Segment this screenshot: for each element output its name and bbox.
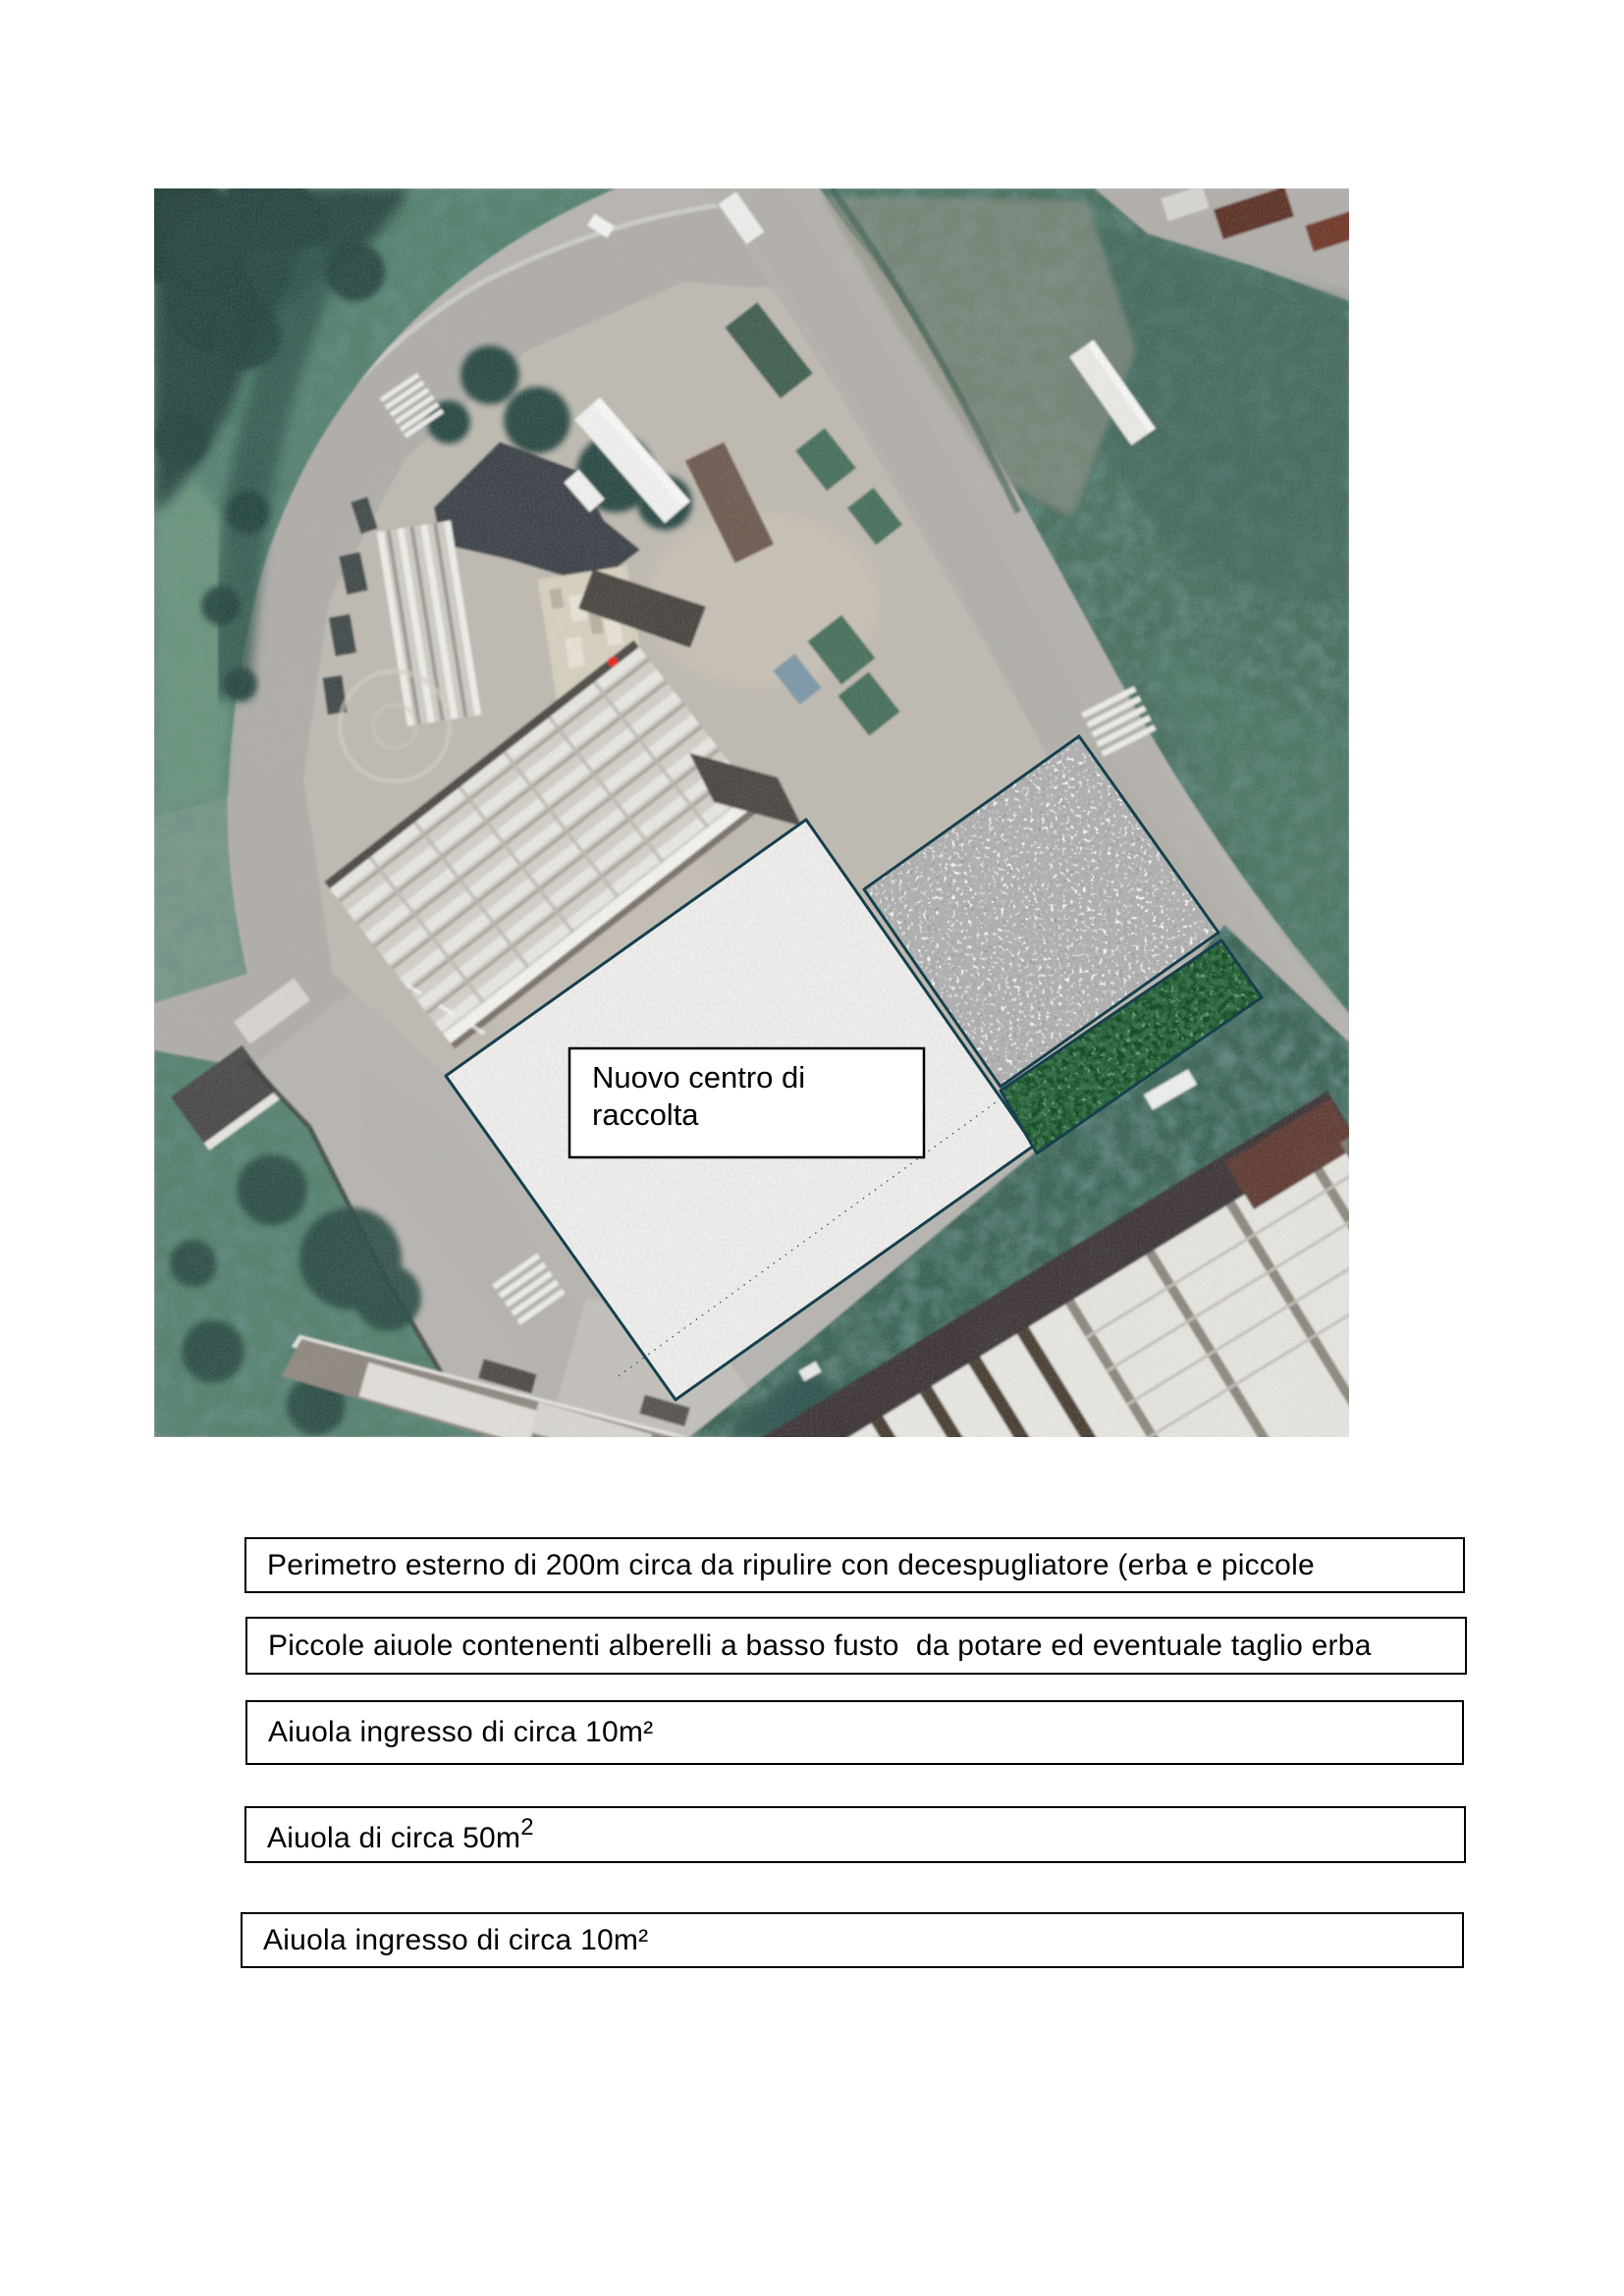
svg-text:raccolta: raccolta [592, 1097, 699, 1132]
svg-text:Nuovo centro di: Nuovo centro di [592, 1060, 805, 1095]
